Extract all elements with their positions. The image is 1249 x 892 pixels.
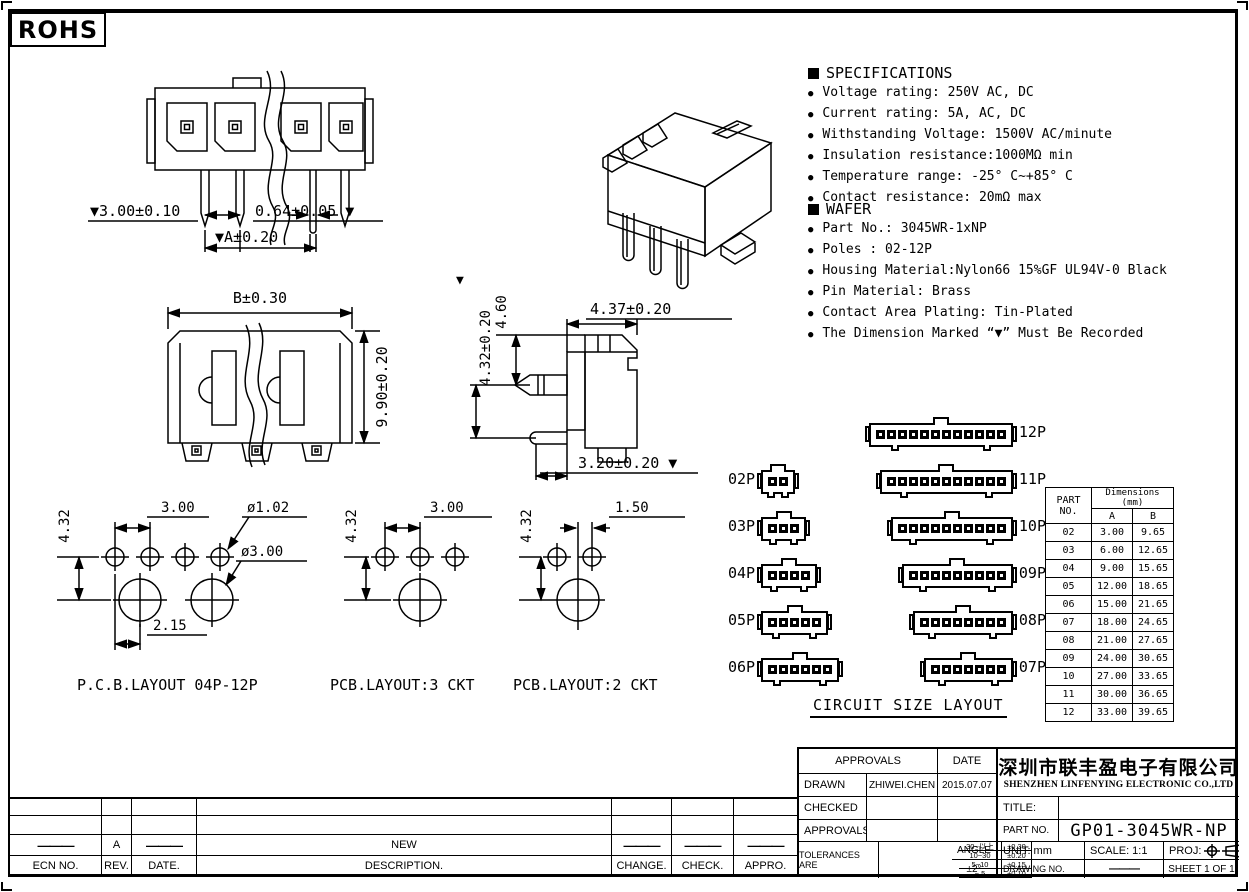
pin-cavity xyxy=(779,618,788,627)
pin-cavity xyxy=(964,524,973,533)
connector-label: 07P xyxy=(1019,658,1046,676)
revision-table-cell xyxy=(102,816,132,835)
pcb-holes xyxy=(543,543,606,630)
mount-tab xyxy=(949,558,965,566)
revision-table-cell: ——— xyxy=(132,835,197,856)
side-ear xyxy=(898,567,903,583)
pin-cavity xyxy=(953,571,962,580)
spec-list-item: ●Insulation resistance:1000MΩ min xyxy=(808,146,1238,167)
title-block: APPROVALS DATE DRAWN ZHIWEI.CHEN 2015.07… xyxy=(797,747,1237,876)
pin-cavity xyxy=(898,524,907,533)
side-ear xyxy=(887,520,892,536)
dim-pitch-label: 1.50 xyxy=(615,500,649,516)
pin-cavity xyxy=(768,524,777,533)
mount-tab xyxy=(781,558,797,566)
dimensions-table-cell: 36.65 xyxy=(1133,686,1174,704)
side-view-outline xyxy=(515,335,637,462)
spec-list-item: ●Withstanding Voltage: 1500V AC/minute xyxy=(808,125,1238,146)
approved-label: APPROVALS xyxy=(799,820,867,842)
revision-table-cell xyxy=(10,799,102,816)
dim-pin-width-label: 0.64±0.05 ▼ xyxy=(255,202,354,220)
sheet-border-top xyxy=(8,9,1238,13)
pin-cavity xyxy=(768,477,777,486)
pin-cavity xyxy=(812,665,821,674)
revision-table-header-cell: DESCRIPTION. xyxy=(197,856,612,876)
mount-foot xyxy=(986,539,994,545)
connector-label: 09P xyxy=(1019,564,1046,582)
company-name-cn: 深圳市联丰盈电子有限公司 xyxy=(998,756,1238,780)
connector-drawing xyxy=(761,517,806,541)
specifications-title: SPECIFICATIONS xyxy=(808,63,1238,83)
dimensions-table-row: 0615.0021.65 xyxy=(1046,596,1174,614)
checked-value xyxy=(867,797,938,820)
dimensions-table-cell: 21.00 xyxy=(1092,632,1133,650)
dim-v-label: 4.32 xyxy=(344,509,360,543)
company-block: 深圳市联丰盈电子有限公司 SHENZHEN LINFENYING ELECTRO… xyxy=(998,749,1239,797)
dimensions-table-cell: 02 xyxy=(1046,524,1092,542)
pin-cavity xyxy=(953,430,962,439)
revision-table-cell: ——— xyxy=(612,835,672,856)
pin-cavity xyxy=(887,477,896,486)
sheet-field: SHEET 1 OF 1 xyxy=(1164,860,1239,878)
corner-mark-icon xyxy=(1,1,12,10)
pin-cavity xyxy=(909,571,918,580)
wafer-list: ●Part No.: 3045WR-1xNP●Poles : 02-12P●Ho… xyxy=(808,219,1238,345)
circuit-left-cell: 02P xyxy=(728,464,795,494)
pin-cavity xyxy=(909,477,918,486)
revision-table-header-cell: REV. xyxy=(102,856,132,876)
dot-bullet-icon: ● xyxy=(808,221,813,240)
drawn-by-value: ZHIWEI.CHEN xyxy=(867,774,938,797)
mount-foot xyxy=(919,586,927,592)
pin-cavity xyxy=(790,665,799,674)
dot-bullet-icon: ● xyxy=(808,169,813,188)
isometric-body xyxy=(603,113,771,289)
mount-tab xyxy=(776,511,792,519)
pin-cavity xyxy=(768,665,777,674)
dimensions-table-cell: 9.00 xyxy=(1092,560,1133,578)
pin-cavity xyxy=(801,571,810,580)
dimensions-table-cell: 18.00 xyxy=(1092,614,1133,632)
dimensions-table-cell: 24.00 xyxy=(1092,650,1133,668)
record-triangle-icon: ▼ xyxy=(456,273,464,288)
connector-drawing xyxy=(761,611,828,635)
dimensions-table-cell: 12.65 xyxy=(1133,542,1174,560)
pin-cavity xyxy=(997,430,1006,439)
pcb-layout-3ckt-drawing: 4.32 3.00 PCB.LAYOUT:3 CKT xyxy=(330,478,500,708)
tolerances-label: TOLERANCES ARE xyxy=(799,842,879,878)
dim-pitch-label: 3.00 xyxy=(430,500,464,516)
mount-foot xyxy=(781,492,789,498)
pin-cavity xyxy=(931,430,940,439)
circuit-right-cell: 09P xyxy=(902,558,1046,588)
dimension-lines xyxy=(344,517,492,600)
spec-list-item: ●Housing Material:Nylon66 15%GF UL94V-0 … xyxy=(808,261,1238,282)
spec-list-item: ●Voltage rating: 250V AC, DC xyxy=(808,83,1238,104)
pin-cavity xyxy=(790,571,799,580)
connector-label: 08P xyxy=(1019,611,1046,629)
mount-foot xyxy=(772,633,780,639)
pin-cavity xyxy=(997,524,1006,533)
dimensions-table-cell: 24.65 xyxy=(1133,614,1174,632)
pin-cavity xyxy=(768,618,777,627)
pin-cavity xyxy=(931,524,940,533)
isometric-view-drawing xyxy=(553,93,808,293)
dimensions-table-dims-header: Dimensions (mm) xyxy=(1092,488,1174,509)
pin-cavity xyxy=(986,477,995,486)
spec-list-item: ●Pin Material: Brass xyxy=(808,282,1238,303)
pin-cavity xyxy=(931,571,940,580)
pin-cavity xyxy=(801,618,810,627)
spec-list-item-text: Current rating: 5A, AC, DC xyxy=(822,104,1026,123)
spec-list-item-text: Withstanding Voltage: 1500V AC/minute xyxy=(822,125,1112,144)
mount-tab xyxy=(770,464,786,472)
side-ear xyxy=(757,614,762,630)
revision-table-cell xyxy=(10,816,102,835)
mount-tab xyxy=(792,652,808,660)
circuit-right-cell: 07P xyxy=(924,652,1046,682)
spec-list-item-text: Contact Area Plating: Tin-Plated xyxy=(822,303,1072,322)
revision-table-cell xyxy=(734,799,797,816)
dim-432-label: 4.32±0.20 xyxy=(478,310,494,386)
title-value xyxy=(1059,797,1239,820)
spec-list-item: ●Part No.: 3045WR-1xNP xyxy=(808,219,1238,240)
pin-cavity xyxy=(942,524,951,533)
dimensions-table-row: 0512.0018.65 xyxy=(1046,578,1174,596)
checked-label: CHECKED xyxy=(799,797,867,820)
dimensions-table-row: 1130.0036.65 xyxy=(1046,686,1174,704)
pin-cavity xyxy=(920,477,929,486)
checked-date-value xyxy=(938,797,996,820)
pin-cavity xyxy=(953,665,962,674)
mount-foot xyxy=(985,492,993,498)
pin-cavity xyxy=(920,571,929,580)
dimensions-table-cell: 04 xyxy=(1046,560,1092,578)
mount-foot xyxy=(938,680,946,686)
pin-cavity xyxy=(898,430,907,439)
dim-pitch-label: 3.00 xyxy=(161,500,195,516)
mount-foot xyxy=(770,586,778,592)
drawn-label: DRAWN xyxy=(799,774,867,797)
pin-cavity xyxy=(812,618,821,627)
mount-foot xyxy=(800,586,808,592)
angle-value: ±2° xyxy=(952,860,996,878)
dim-v-label: 4.32 xyxy=(519,509,535,543)
pcb-layout-caption: PCB.LAYOUT:3 CKT xyxy=(330,676,475,694)
pcb-layout-caption: P.C.B.LAYOUT 04P-12P xyxy=(77,676,258,694)
pin-cavity xyxy=(931,618,940,627)
connector-label: 12P xyxy=(1019,423,1046,441)
side-ear xyxy=(757,661,762,677)
mount-foot xyxy=(988,586,996,592)
pin-cavity xyxy=(920,430,929,439)
revision-table-cell: A xyxy=(102,835,132,856)
circuit-left-cell: 06P xyxy=(728,652,839,682)
revision-table-cell xyxy=(672,799,734,816)
pin-cavity xyxy=(975,524,984,533)
dimensions-table: PART NO. Dimensions (mm) A B 023.009.650… xyxy=(1045,487,1174,722)
pin-cavity xyxy=(997,665,1006,674)
mount-foot xyxy=(928,633,936,639)
side-ear xyxy=(757,520,762,536)
dimensions-table-cell: 11 xyxy=(1046,686,1092,704)
pin-cavity xyxy=(953,477,962,486)
side-ear xyxy=(816,567,821,583)
revision-table-header-cell: CHANGE. xyxy=(612,856,672,876)
dimensions-table-cell: 12.00 xyxy=(1092,578,1133,596)
side-ear xyxy=(920,661,925,677)
pin-cavity xyxy=(801,665,810,674)
pin-cavity xyxy=(942,665,951,674)
dim-small-hole-label: ø1.02 xyxy=(247,500,289,516)
side-ear xyxy=(827,614,832,630)
pin-cavity xyxy=(953,618,962,627)
revision-table-cell xyxy=(612,799,672,816)
side-ear xyxy=(1012,426,1017,442)
unit-field: UNIT: mm xyxy=(998,842,1085,860)
dim-offset-label: 2.15 xyxy=(153,618,187,634)
scale-field: SCALE: 1:1 xyxy=(1085,842,1164,860)
pin-cavity xyxy=(920,618,929,627)
dot-bullet-icon: ● xyxy=(808,326,813,345)
mount-foot xyxy=(773,680,781,686)
mount-foot xyxy=(819,680,827,686)
circuit-row: 04P09P xyxy=(728,549,1046,596)
dimensions-table-cell: 03 xyxy=(1046,542,1092,560)
mount-foot xyxy=(769,539,777,545)
dimensions-table-part-header: PART NO. xyxy=(1046,488,1092,524)
mount-foot xyxy=(790,539,798,545)
drawing-no-label: DRAWING NO. xyxy=(998,860,1085,878)
pin-cavity xyxy=(964,665,973,674)
dimensions-table-cell: 05 xyxy=(1046,578,1092,596)
pin-cavity xyxy=(997,477,1006,486)
specifications-title-text: SPECIFICATIONS xyxy=(826,64,952,82)
connector-label: 03P xyxy=(728,517,755,535)
side-ear xyxy=(757,473,762,489)
square-bullet-icon xyxy=(808,68,819,79)
connector-drawing xyxy=(902,564,1013,588)
mount-tab xyxy=(938,464,954,472)
revision-table-cell xyxy=(132,799,197,816)
dimensions-table-cell: 15.00 xyxy=(1092,596,1133,614)
spec-list-item-text: Pin Material: Brass xyxy=(822,282,971,301)
spec-list-item-text: The Dimension Marked “▼” Must Be Recorde… xyxy=(822,324,1143,343)
pin-cavity xyxy=(876,430,885,439)
pin-cavity xyxy=(953,524,962,533)
spec-list-item: ●Temperature range: -25° C~+85° C xyxy=(808,167,1238,188)
mount-tab xyxy=(944,511,960,519)
drawn-date-value: 2015.07.07 xyxy=(938,774,996,797)
pin-cavity xyxy=(975,571,984,580)
connector-drawing xyxy=(761,564,817,588)
dimensions-table-row: 023.009.65 xyxy=(1046,524,1174,542)
circuit-size-layout-section: 12P02P11P03P10P04P09P05P08P06P07P CIRCUI… xyxy=(728,408,1046,718)
dimensions-table-col-b: B xyxy=(1133,509,1174,524)
approvals-header: APPROVALS xyxy=(799,749,938,774)
dim-pitch-label: ▼3.00±0.10 xyxy=(90,202,180,220)
dimensions-table-cell: 09 xyxy=(1046,650,1092,668)
pcb-layout-main-drawing: 4.32 3.00 ø1.02 ø3.00 2.15 P.C.B.LAYOUT … xyxy=(35,478,335,708)
pin-cavity xyxy=(975,618,984,627)
proj-label: PROJ: xyxy=(1169,845,1201,857)
dot-bullet-icon: ● xyxy=(808,85,813,104)
connector-front-view-drawing: ▼3.00±0.10 0.64±0.05 ▼ ▼A±0.20 xyxy=(85,55,475,255)
pcb-holes xyxy=(101,543,239,627)
dimension-lines xyxy=(168,307,380,443)
side-ear xyxy=(1012,661,1017,677)
wafer-title: WAFER xyxy=(808,199,1238,219)
mount-tab xyxy=(955,605,971,613)
dimensions-table-cell: 6.00 xyxy=(1092,542,1133,560)
dim-bottom-label: 3.20±0.20 ▼ xyxy=(578,454,677,472)
pin-cavity xyxy=(887,430,896,439)
spec-list-item: ●The Dimension Marked “▼” Must Be Record… xyxy=(808,324,1238,345)
date-header: DATE xyxy=(938,749,996,774)
wafer-title-text: WAFER xyxy=(826,200,871,218)
pin-cavity xyxy=(986,571,995,580)
pcb-layout-caption: PCB.LAYOUT:2 CKT xyxy=(513,676,658,694)
pin-cavity xyxy=(975,430,984,439)
dot-bullet-icon: ● xyxy=(808,305,813,324)
revision-table-cell: ——— xyxy=(10,835,102,856)
rohs-badge: ROHS xyxy=(10,12,106,47)
connector-label: 02P xyxy=(728,470,755,488)
revision-table-cell xyxy=(734,816,797,835)
mount-tab xyxy=(787,605,803,613)
dimensions-table-cell: 3.00 xyxy=(1092,524,1133,542)
mount-foot xyxy=(909,539,917,545)
side-ear xyxy=(1012,567,1017,583)
specifications-list: ●Voltage rating: 250V AC, DC●Current rat… xyxy=(808,83,1238,209)
pin-cavity xyxy=(768,571,777,580)
sheet-border-left xyxy=(8,9,10,877)
mount-foot xyxy=(809,633,817,639)
connector-drawing xyxy=(880,470,1013,494)
revision-table-cell xyxy=(612,816,672,835)
pin-cavity xyxy=(964,571,973,580)
mount-foot xyxy=(900,492,908,498)
dimensions-table-cell: 12 xyxy=(1046,704,1092,722)
projection-symbol-icon xyxy=(1204,844,1239,858)
revision-table-header-cell: ECN NO. xyxy=(10,856,102,876)
spec-list-item-text: Poles : 02-12P xyxy=(822,240,932,259)
spec-list-item-text: Temperature range: -25° C~+85° C xyxy=(822,167,1072,186)
pin-cavity xyxy=(909,524,918,533)
revision-table-header-cell: APPRO. xyxy=(734,856,797,876)
approved-value xyxy=(867,820,938,842)
spec-list-item-text: Housing Material:Nylon66 15%GF UL94V-0 B… xyxy=(822,261,1166,280)
dimensions-table-row: 1233.0039.65 xyxy=(1046,704,1174,722)
revision-table-cell xyxy=(197,799,612,816)
side-ear xyxy=(757,567,762,583)
connector-label: 11P xyxy=(1019,470,1046,488)
mount-tab xyxy=(933,417,949,425)
side-ear xyxy=(805,520,810,536)
spec-list-item-text: Insulation resistance:1000MΩ min xyxy=(822,146,1072,165)
connector-drawing xyxy=(869,423,1013,447)
pin-cavity xyxy=(986,618,995,627)
pin-cavity xyxy=(942,571,951,580)
revision-table-header-cell: CHECK. xyxy=(672,856,734,876)
dimensions-table-cell: 07 xyxy=(1046,614,1092,632)
dimensions-table-cell: 39.65 xyxy=(1133,704,1174,722)
side-ear xyxy=(1012,473,1017,489)
dimension-lines xyxy=(519,517,685,600)
revision-table: ———A———NEW—————————ECN NO.REV.DATE.DESCR… xyxy=(8,797,799,876)
specifications-section: SPECIFICATIONS ●Voltage rating: 250V AC,… xyxy=(808,63,1238,209)
dimensions-table-cell: 30.65 xyxy=(1133,650,1174,668)
pcb-holes xyxy=(371,543,469,627)
dimensions-table-row: 0718.0024.65 xyxy=(1046,614,1174,632)
pin-cavity xyxy=(931,665,940,674)
housing-front-view-drawing: B±0.30 9.90±0.20 xyxy=(150,285,430,485)
dimensions-table-cell: 08 xyxy=(1046,632,1092,650)
connector-label: 05P xyxy=(728,611,755,629)
connector-drawing xyxy=(761,658,839,682)
side-ear xyxy=(876,473,881,489)
circuit-row: 03P10P xyxy=(728,502,1046,549)
revision-table-cell: ——— xyxy=(672,835,734,856)
spec-list-item-text: Part No.: 3045WR-1xNP xyxy=(822,219,986,238)
pin-cavity xyxy=(898,477,907,486)
part-no-label: PART NO. xyxy=(998,820,1059,842)
dim-v-label: 4.32 xyxy=(57,509,73,543)
circuit-row: 05P08P xyxy=(728,596,1046,643)
approved-date-value xyxy=(938,820,996,842)
dim-460-label: 4.60 xyxy=(494,295,510,329)
dimensions-table-cell: 9.65 xyxy=(1133,524,1174,542)
pin-cavity xyxy=(942,430,951,439)
dimensions-table-row: 0924.0030.65 xyxy=(1046,650,1174,668)
mount-foot xyxy=(767,492,775,498)
dim-height-label: 9.90±0.20 xyxy=(373,346,391,427)
pin-cavity xyxy=(975,477,984,486)
part-no-value: GP01-3045WR-NP xyxy=(1059,820,1239,842)
spec-list-item-text: Voltage rating: 250V AC, DC xyxy=(822,83,1033,102)
revision-table-cell xyxy=(102,799,132,816)
pin-cavity xyxy=(975,665,984,674)
wafer-section: WAFER ●Part No.: 3045WR-1xNP●Poles : 02-… xyxy=(808,199,1238,345)
dimensions-table-col-a: A xyxy=(1092,509,1133,524)
spec-list-item: ●Contact Area Plating: Tin-Plated xyxy=(808,303,1238,324)
revision-table-cell xyxy=(132,816,197,835)
circuit-size-layout-title: CIRCUIT SIZE LAYOUT xyxy=(810,696,1007,718)
pin-cavity xyxy=(779,524,788,533)
spec-list-item: ●Poles : 02-12P xyxy=(808,240,1238,261)
tolerance-mini-table: 30~以上±0.3010~30±0.205~10±0.15~ 5±0.10 xyxy=(879,842,952,878)
circuit-right-cell: 08P xyxy=(913,605,1046,635)
pin-cavity xyxy=(997,618,1006,627)
revision-table-cell: NEW xyxy=(197,835,612,856)
housing-outline xyxy=(168,331,352,461)
company-name-en: SHENZHEN LINFENYING ELECTRONIC CO.,LTD xyxy=(1004,780,1234,790)
corner-mark-icon xyxy=(1237,882,1248,891)
dimensions-table-row: 0821.0027.65 xyxy=(1046,632,1174,650)
side-ear xyxy=(1012,520,1017,536)
dimensions-table-cell: 15.65 xyxy=(1133,560,1174,578)
dimensions-table-cell: 21.65 xyxy=(1133,596,1174,614)
circuit-row: 12P xyxy=(728,408,1046,455)
side-ear xyxy=(865,426,870,442)
dot-bullet-icon: ● xyxy=(808,127,813,146)
circuit-row: 06P07P xyxy=(728,643,1046,690)
dimensions-table-cell: 10 xyxy=(1046,668,1092,686)
corner-mark-icon xyxy=(1,882,12,891)
dimensions-table-cell: 27.00 xyxy=(1092,668,1133,686)
pin-cavity xyxy=(790,618,799,627)
pin-cavity xyxy=(779,477,788,486)
